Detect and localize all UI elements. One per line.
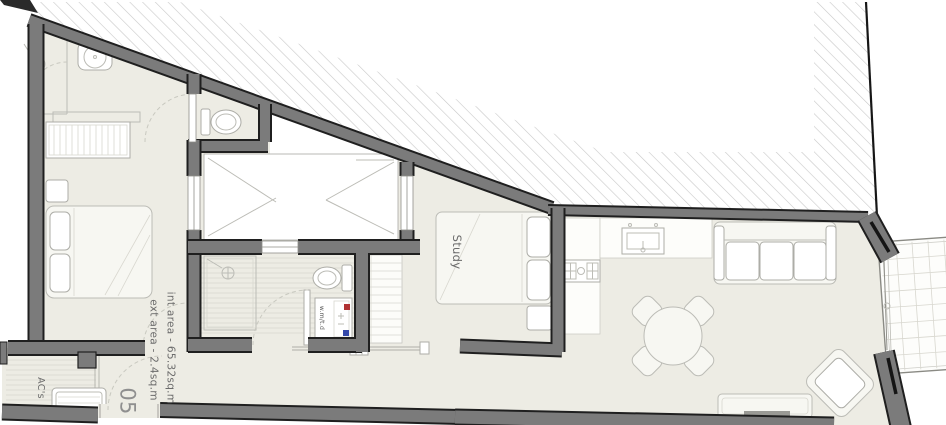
armrest bbox=[826, 226, 836, 280]
side-table bbox=[527, 306, 552, 330]
hob bbox=[562, 260, 600, 282]
ac-units-label: AC's bbox=[35, 377, 45, 399]
unit-number-label: 05 bbox=[117, 387, 138, 414]
pillow bbox=[50, 254, 70, 292]
kitchen-sink bbox=[622, 224, 664, 255]
bed bbox=[46, 206, 152, 298]
bathroom-door-leaf bbox=[304, 290, 310, 345]
pillow bbox=[527, 217, 550, 257]
floor-plan: Study int area - 65.32sq.m ext area - 2.… bbox=[0, 0, 946, 425]
seat-cushion bbox=[726, 242, 759, 280]
washer-dryer-label: w.m/t.d bbox=[318, 306, 324, 330]
armrest bbox=[714, 226, 724, 280]
dining-table bbox=[644, 307, 702, 365]
toilet-tank bbox=[201, 109, 210, 135]
cold-water-point bbox=[343, 330, 349, 336]
internal-area-label: int area - 65.32sq.m bbox=[165, 292, 176, 405]
external-area-label: ext area - 2.4sq.m bbox=[148, 299, 159, 401]
party-wall-mark bbox=[0, 0, 38, 13]
sofa bbox=[714, 222, 836, 284]
hot-water-point bbox=[344, 304, 350, 310]
pillow bbox=[527, 260, 550, 300]
study-room-label: Study bbox=[450, 235, 462, 270]
toilet bbox=[313, 265, 352, 291]
floor-plan-drawing bbox=[0, 0, 946, 425]
wardrobe bbox=[46, 122, 130, 158]
seat-cushion bbox=[794, 242, 826, 280]
pillow bbox=[50, 212, 70, 250]
bedside-table bbox=[46, 180, 68, 202]
seat-cushion bbox=[760, 242, 793, 280]
stairs bbox=[368, 255, 402, 343]
wc-door-leaf bbox=[189, 94, 196, 142]
